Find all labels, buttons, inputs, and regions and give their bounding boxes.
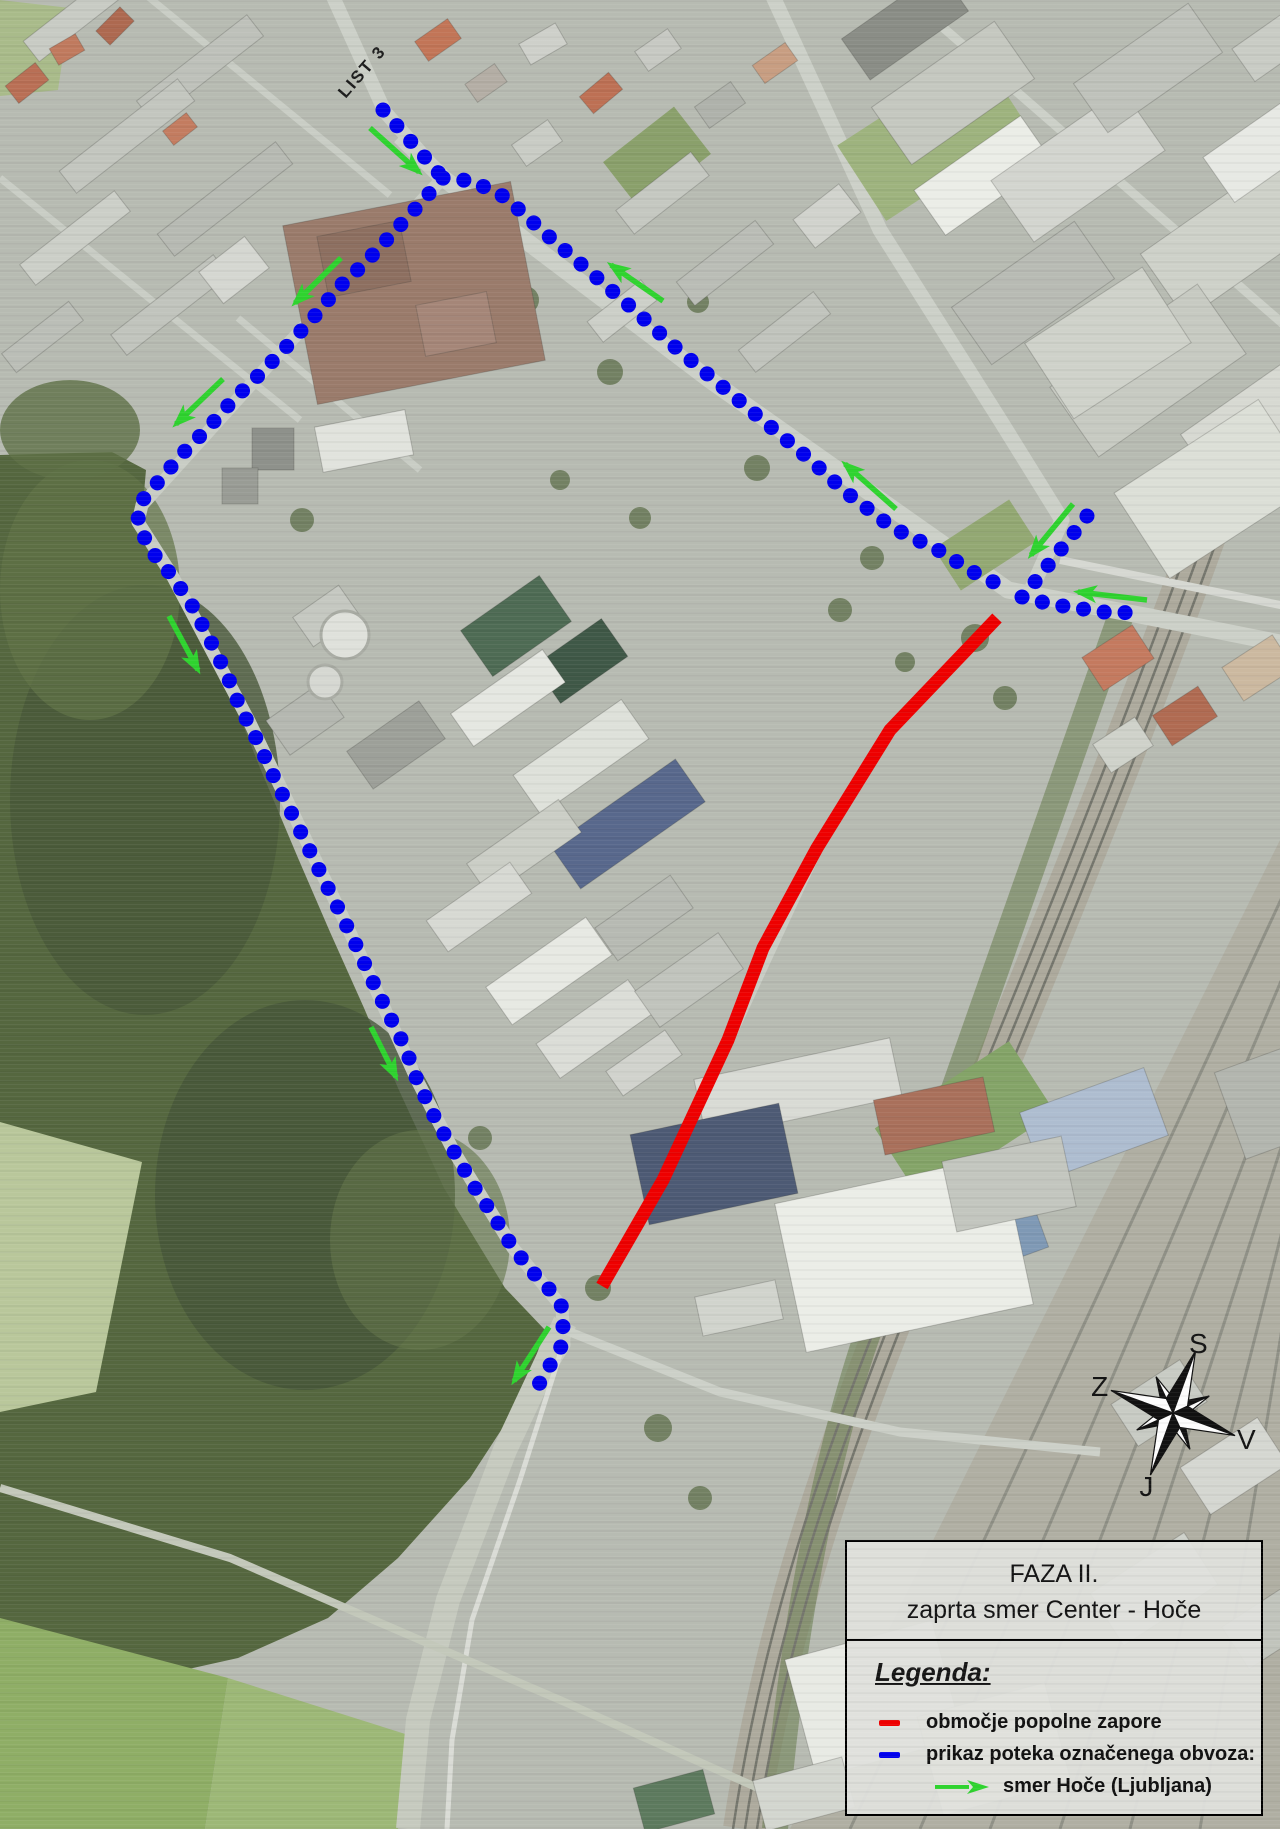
legend-item-detour: prikaz poteka označenega obvoza: (865, 1743, 1251, 1766)
legend-item-direction: smer Hoče (Ljubljana) (919, 1775, 1251, 1798)
direction-arrow-5 (371, 1027, 396, 1077)
legend-item-closure: območje popolne zapore (865, 1711, 1251, 1734)
detour-dash-swatch (879, 1752, 900, 1758)
closure-line (602, 618, 997, 1286)
phase-title: FAZA II. (847, 1557, 1261, 1593)
legend-item-label: smer Hoče (Ljubljana) (1003, 1775, 1212, 1798)
legend-heading: Legenda: (875, 1657, 991, 1688)
direction-arrow-icon (933, 1779, 989, 1795)
compass-west-label: Z (1091, 1371, 1108, 1402)
compass-north-label: S (1189, 1328, 1208, 1359)
detour-route-trzaska-leg (443, 178, 1008, 589)
direction-arrow-4 (169, 616, 198, 670)
direction-arrow-10 (1078, 592, 1147, 600)
legend-body: Legenda: območje popolne zapore prikaz p… (847, 1641, 1261, 1798)
legend-item-label: prikaz poteka označenega obvoza: (926, 1743, 1255, 1766)
closure-line-swatch (879, 1720, 900, 1726)
legend-item-label: območje popolne zapore (926, 1711, 1162, 1734)
compass-rose: S V J Z (1055, 1296, 1280, 1534)
compass-south-label: J (1139, 1471, 1153, 1502)
phase-subtitle: zaprta smer Center - Hoče (847, 1593, 1261, 1629)
compass-east-label: V (1237, 1424, 1256, 1455)
detour-route-southwest-leg (138, 178, 563, 1395)
phase-title-box: FAZA II. zaprta smer Center - Hoče (847, 1542, 1261, 1641)
direction-arrow-6 (514, 1327, 549, 1381)
legend-panel: FAZA II. zaprta smer Center - Hoče Legen… (845, 1540, 1263, 1816)
